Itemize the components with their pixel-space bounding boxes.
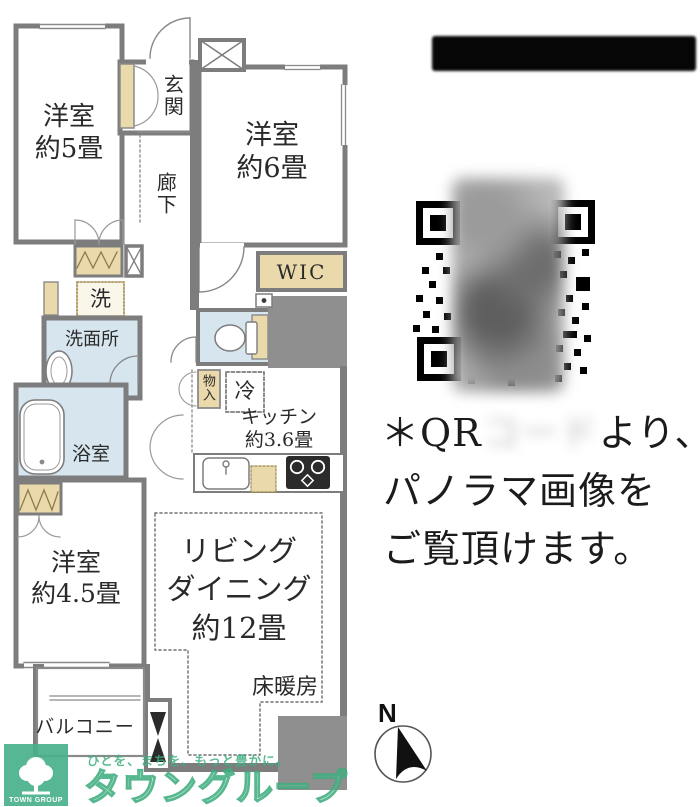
qr-note-line1: ＊QRコードより、 <box>381 402 700 457</box>
compass-north-label: N <box>378 698 397 728</box>
room-label-floor-heating: 床暖房 <box>244 675 326 702</box>
agency-logo-caption: TOWN GROUP <box>9 797 63 804</box>
qr-note-line1-blurred: コード <box>482 411 599 455</box>
balcony <box>33 664 144 756</box>
tree-icon <box>14 753 58 797</box>
pipe-shaft-top <box>200 40 244 70</box>
agency-logo: TOWN GROUP <box>4 744 68 806</box>
room-label-bedroom45: 洋室 約4.5畳 <box>20 548 132 609</box>
room-label-wic: WIC <box>258 260 345 284</box>
room-label-storage: 物入 <box>199 374 215 402</box>
room-label-bedroom6: 洋室 約6畳 <box>222 120 322 186</box>
room-label-laundry: 洗 <box>77 287 124 313</box>
room-label-refrigerator: 冷 <box>226 379 264 405</box>
room-label-hallway: 廊下 <box>153 172 177 216</box>
kitchen-counter <box>194 454 344 492</box>
qr-note-line1-prefix: ＊QR <box>381 411 482 455</box>
qr-note-line2: パノラマ画像を <box>383 460 656 515</box>
room-label-balcony: バルコニー <box>22 716 148 739</box>
qr-code-blur-overlay <box>452 178 564 392</box>
qr-note-line3: ご覧頂けます。 <box>383 518 652 573</box>
wall-hall-right <box>190 130 199 247</box>
room-label-kitchen: キッチン 約3.6畳 <box>220 406 338 452</box>
room-label-living-dining: リビング ダイニング 約12畳 <box>155 532 323 647</box>
room-label-entrance: 玄関 <box>160 74 184 118</box>
room-label-washroom: 洗面所 <box>46 329 138 351</box>
shoe-cabinet <box>120 64 134 128</box>
wall-ld-right <box>340 510 347 718</box>
pipe-shaft-mid <box>126 246 142 276</box>
stove <box>286 456 330 489</box>
linen-cabinet <box>44 282 58 315</box>
censor-bar <box>432 36 696 71</box>
wall-toilet-left <box>190 247 199 310</box>
qr-note-line1-suffix: より、 <box>599 411 700 455</box>
room-label-bathroom: 浴室 <box>60 443 122 466</box>
toilet-tank <box>246 322 257 354</box>
compass: N <box>366 694 446 794</box>
structural-block-upper <box>256 294 347 368</box>
room-label-bedroom5: 洋室 約5畳 <box>18 102 120 165</box>
floorplan-page: 洋室 約5畳 洋室 約6畳 玄関 廊下 WIC 洗 洗面所 浴室 物入 冷 キッ… <box>0 0 700 807</box>
agency-brand-watermark: タウングループ <box>84 757 348 807</box>
toilet-bowl <box>215 325 245 351</box>
